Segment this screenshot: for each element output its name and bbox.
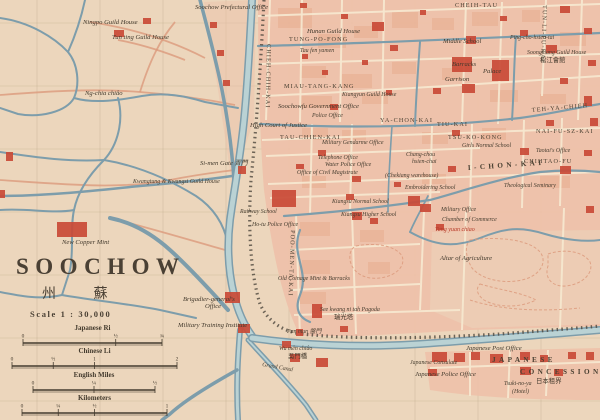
map-label: Wu mên chiâo — [279, 346, 312, 352]
building — [316, 358, 328, 367]
map-label: Military Office — [440, 206, 477, 213]
building — [586, 352, 594, 360]
scale-bar-tick-value: ½ — [92, 403, 96, 410]
city-block — [302, 260, 330, 274]
map-label: 瑞光塔 — [334, 312, 354, 321]
building — [408, 196, 420, 206]
map-label: Theological Seminary — [504, 183, 556, 189]
map-label: Japanese Post Office — [466, 345, 522, 352]
building — [372, 22, 384, 31]
city-block — [278, 8, 312, 28]
map-label: Office of Civil Magistrate — [297, 169, 358, 176]
map-label: High Court of Justice — [249, 122, 307, 129]
scale-bar-tick-value: 0 — [22, 334, 25, 340]
scale-bar-tick-value: ½ — [153, 380, 157, 387]
building — [462, 84, 475, 93]
building — [420, 10, 426, 15]
building — [57, 222, 87, 237]
city-block — [300, 292, 326, 304]
building — [322, 70, 328, 75]
scale-bar-label: Japanese Ri — [75, 324, 111, 332]
building — [362, 60, 368, 65]
building — [143, 18, 151, 24]
map-label: TIU-KAI — [437, 121, 468, 128]
scale-bar-tick-value: ¾ — [160, 333, 164, 340]
map-label: Kwangtung & Kwangsi Guild House — [132, 179, 220, 185]
building — [238, 166, 246, 174]
scale-bar-tick-value: 0 — [11, 357, 14, 363]
city-block — [540, 94, 566, 104]
map-label: Tun ting Guild House — [112, 34, 169, 41]
map-label: Tsuki-no-ya — [504, 381, 532, 387]
building — [223, 80, 230, 86]
map-label: NAI-FU-SZ-KAI — [536, 128, 594, 135]
map-label: Tau fen yamen — [300, 47, 334, 54]
scale-bar-tick-value: ¼ — [56, 404, 60, 410]
map-label: Brigadier-general's — [183, 296, 235, 303]
building — [546, 120, 554, 126]
map-label: Japanese Consulate — [410, 360, 458, 366]
building — [217, 50, 224, 56]
map-label: YA-CHON-KAI — [380, 117, 433, 124]
map-label: Kiangsu Normal School — [331, 199, 389, 205]
map-label: Japanese Police Office — [415, 371, 476, 378]
building — [420, 204, 431, 212]
map-label: Girls Normal School — [462, 143, 511, 149]
map-label: Kiangyun Guild House — [341, 92, 397, 98]
building — [500, 16, 507, 21]
map-label: Ho-tu Police Office — [251, 221, 299, 228]
map-label: Railway School — [239, 209, 277, 215]
map-canvas: Ningpo Guild HouseTun ting Guild HouseNg… — [0, 0, 600, 420]
map-label: Barracks — [452, 61, 477, 68]
soochow-map: Ningpo Guild HouseTun ting Guild HouseNg… — [0, 0, 600, 420]
map-label: Garrison — [445, 76, 470, 83]
building — [471, 352, 480, 360]
map-label: (Chekiang warehouse) — [385, 172, 438, 179]
map-label: (Hotel) — [512, 388, 529, 395]
map-label: Military Training Institute — [177, 322, 247, 329]
map-label: TSU-KO-KONG — [448, 134, 503, 141]
map-label: Police Office — [311, 112, 343, 119]
building — [584, 28, 592, 34]
city-block — [522, 10, 540, 22]
map-title: SOOCHOW — [16, 254, 185, 279]
scale-bar-tick-value: 2 — [176, 357, 179, 363]
building — [560, 166, 571, 174]
scale-bar-tick-value: 1 — [93, 357, 96, 363]
map-label: JAPANESE — [492, 356, 556, 364]
scale-bar-label: Kilometers — [78, 394, 111, 402]
building — [590, 118, 598, 126]
map-label: See kwang ni tah Pagoda — [320, 307, 380, 313]
building — [0, 190, 5, 198]
map-label: Military Gendarme Office — [321, 139, 384, 146]
map-scale-text: Scale 1 : 30,000 — [30, 309, 111, 319]
building — [394, 182, 401, 187]
city-block — [392, 12, 418, 28]
city-block — [342, 130, 366, 140]
map-label: Chang-chou — [406, 152, 435, 158]
city-block — [432, 18, 454, 30]
map-label: Palace — [482, 68, 501, 75]
building — [520, 148, 529, 155]
map-label: Embroidering School — [404, 185, 456, 191]
building — [352, 176, 361, 182]
map-label: CHEIH-TAU — [455, 2, 498, 9]
map-label: Hunan Guild House — [306, 28, 360, 35]
map-label: CHIEH-CHIH-KAI — [264, 44, 272, 109]
map-label: TUNG-PO-FONG — [289, 36, 348, 43]
scale-bar-tick-value: ¼ — [92, 381, 96, 387]
map-label: Telephone Office — [318, 154, 358, 161]
building — [296, 164, 304, 169]
city-block — [368, 262, 390, 274]
map-label: Soongkiang Guild House — [527, 50, 587, 56]
map-label: Ping-cho-hsien-tai — [509, 35, 555, 41]
map-label: Office — [205, 303, 221, 310]
map-label: CONCESSION — [520, 368, 600, 376]
building — [6, 152, 13, 161]
map-label: MIAU-TANG-KANG — [284, 83, 355, 90]
building — [210, 22, 217, 28]
building — [448, 166, 456, 172]
map-label: Soochow Prefectural Office — [195, 4, 268, 11]
city-block — [472, 12, 498, 26]
scale-bar-tick-value: 0 — [21, 404, 24, 410]
scale-bar-tick-value: ½ — [51, 356, 55, 363]
scale-bar-tick-value: 1 — [166, 404, 169, 410]
building — [302, 54, 308, 59]
map-label: Pan mun 盤門 — [286, 328, 322, 335]
map-label: Taotai's Office — [536, 147, 571, 154]
city-block — [392, 62, 416, 74]
map-label: Si-men Gate 胥門 — [200, 159, 249, 167]
building — [272, 190, 296, 207]
scale-bar-tick-value: 0 — [32, 381, 35, 387]
building — [433, 88, 441, 94]
map-label: Water Police Office — [325, 161, 372, 168]
map-label: New Copper Mint — [61, 239, 109, 246]
city-block — [360, 230, 384, 242]
building — [560, 6, 570, 13]
scale-bar-label: Chinese Li — [78, 347, 110, 355]
building — [300, 3, 307, 8]
building — [584, 150, 592, 156]
map-title-chinese: 州 蘇 — [42, 286, 125, 302]
map-label: Ng-chia chiâo — [84, 90, 123, 97]
city-block — [300, 222, 330, 236]
map-label: 松江會館 — [540, 55, 566, 64]
scale-bar-tick-value: ½ — [114, 333, 118, 340]
building — [340, 326, 348, 332]
building — [390, 45, 398, 51]
scale-bar-label: English Miles — [74, 371, 115, 379]
building — [341, 14, 348, 19]
map-label: Chamber of Commerce — [442, 216, 497, 223]
map-label: 日本租界 — [536, 376, 562, 385]
building — [588, 60, 596, 66]
map-label: hsien-chai — [412, 159, 437, 165]
map-label: Kiangsu Higher School — [340, 212, 397, 218]
map-label: Soochowfu Government Office — [278, 103, 359, 110]
building — [568, 352, 576, 359]
building — [560, 78, 568, 84]
map-label: Altar of Agriculture — [439, 255, 492, 262]
building — [370, 218, 378, 224]
map-label: 吳門橋 — [288, 351, 308, 360]
map-label: Middle School — [442, 38, 481, 45]
map-label: Ningpo Guild House — [82, 19, 138, 26]
building — [586, 206, 594, 213]
map-label: Tang yuan chiao — [435, 227, 475, 233]
